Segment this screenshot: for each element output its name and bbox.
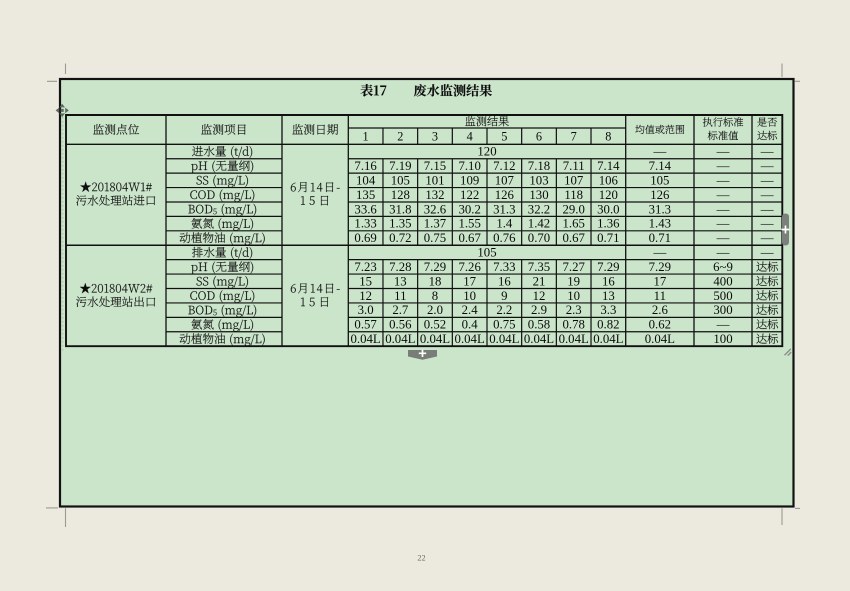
svg-text:—: — (760, 159, 774, 173)
svg-text:0.67: 0.67 (458, 231, 481, 245)
svg-text:0.76: 0.76 (493, 231, 516, 245)
svg-text:118: 118 (564, 188, 583, 202)
svg-text:32.2: 32.2 (528, 202, 550, 216)
svg-text:12: 12 (533, 289, 546, 303)
svg-text:6~9: 6~9 (713, 260, 733, 274)
svg-text:31.3: 31.3 (493, 202, 515, 216)
svg-text:7.26: 7.26 (458, 260, 481, 274)
svg-text:15: 15 (359, 274, 372, 288)
svg-text:130: 130 (529, 188, 548, 202)
svg-text:500: 500 (713, 289, 732, 303)
svg-text:—: — (716, 318, 730, 332)
svg-text:13: 13 (394, 274, 407, 288)
svg-text:—: — (716, 202, 730, 216)
svg-text:16: 16 (602, 274, 615, 288)
svg-text:105: 105 (650, 173, 669, 187)
svg-text:29.0: 29.0 (562, 202, 584, 216)
svg-text:107: 107 (495, 173, 515, 187)
svg-text:31.8: 31.8 (389, 202, 411, 216)
svg-text:—: — (716, 231, 730, 245)
svg-text:—: — (760, 173, 774, 187)
svg-text:1: 1 (363, 129, 369, 143)
svg-text:11: 11 (654, 289, 666, 303)
svg-text:10: 10 (463, 289, 476, 303)
svg-text:7.14: 7.14 (649, 159, 672, 173)
svg-text:18: 18 (429, 274, 442, 288)
svg-text:0.75: 0.75 (493, 318, 515, 332)
svg-text:0.04L: 0.04L (351, 332, 381, 346)
svg-text:105: 105 (391, 173, 410, 187)
svg-text:2.0: 2.0 (427, 303, 443, 317)
svg-text:0.04L: 0.04L (645, 332, 675, 346)
svg-text:0.04L: 0.04L (420, 332, 450, 346)
svg-text:0.75: 0.75 (424, 231, 446, 245)
svg-text:0.78: 0.78 (562, 318, 584, 332)
svg-text:17: 17 (463, 274, 476, 288)
svg-text:19: 19 (567, 274, 580, 288)
svg-text:0.62: 0.62 (649, 318, 671, 332)
svg-text:1.35: 1.35 (389, 217, 411, 231)
svg-text:0.72: 0.72 (389, 231, 411, 245)
svg-text:2.6: 2.6 (652, 303, 669, 317)
svg-text:33.6: 33.6 (354, 202, 377, 216)
svg-text:8: 8 (432, 289, 438, 303)
svg-text:7.27: 7.27 (562, 260, 585, 274)
svg-text:11: 11 (394, 289, 406, 303)
svg-text:122: 122 (460, 188, 479, 202)
svg-text:—: — (716, 145, 730, 159)
svg-text:7.19: 7.19 (389, 159, 411, 173)
svg-text:105: 105 (477, 246, 496, 260)
svg-text:22: 22 (417, 554, 425, 563)
svg-text:—: — (652, 145, 666, 159)
svg-text:1.55: 1.55 (458, 217, 480, 231)
svg-text:126: 126 (495, 188, 515, 202)
svg-text:0.70: 0.70 (528, 231, 550, 245)
svg-text:1.42: 1.42 (528, 217, 550, 231)
svg-text:1.33: 1.33 (354, 217, 376, 231)
svg-text:0.67: 0.67 (562, 231, 585, 245)
svg-text:107: 107 (564, 173, 584, 187)
svg-text:128: 128 (391, 188, 410, 202)
svg-text:—: — (716, 188, 730, 202)
svg-text:7.15: 7.15 (424, 159, 446, 173)
svg-text:3.0: 3.0 (358, 303, 374, 317)
svg-text:1.37: 1.37 (424, 217, 447, 231)
svg-text:0.04L: 0.04L (489, 332, 519, 346)
svg-text:0.71: 0.71 (649, 231, 671, 245)
svg-text:3: 3 (432, 129, 438, 143)
svg-text:0.82: 0.82 (597, 318, 619, 332)
svg-text:—: — (716, 173, 730, 187)
svg-text:7: 7 (571, 129, 577, 143)
svg-text:30.0: 30.0 (597, 202, 619, 216)
svg-text:120: 120 (599, 188, 618, 202)
svg-text:—: — (760, 246, 774, 260)
svg-text:7.23: 7.23 (354, 260, 376, 274)
svg-text:2.7: 2.7 (392, 303, 409, 317)
svg-text:0.56: 0.56 (389, 318, 412, 332)
svg-text:2.3: 2.3 (566, 303, 582, 317)
svg-text:7.29: 7.29 (424, 260, 446, 274)
svg-text:120: 120 (477, 145, 496, 159)
svg-text:31.3: 31.3 (649, 202, 671, 216)
svg-text:—: — (760, 231, 774, 245)
svg-text:2.2: 2.2 (496, 303, 512, 317)
svg-text:2.9: 2.9 (531, 303, 547, 317)
svg-text:101: 101 (425, 173, 444, 187)
svg-text:1.65: 1.65 (562, 217, 584, 231)
svg-text:7.35: 7.35 (528, 260, 550, 274)
svg-text:5: 5 (501, 129, 507, 143)
svg-text:30.2: 30.2 (458, 202, 480, 216)
svg-text:100: 100 (713, 332, 732, 346)
svg-text:—: — (716, 246, 730, 260)
svg-text:8: 8 (605, 129, 611, 143)
svg-text:0.57: 0.57 (354, 318, 377, 332)
svg-text:0.52: 0.52 (424, 318, 446, 332)
svg-text:16: 16 (498, 274, 511, 288)
svg-text:7.28: 7.28 (389, 260, 411, 274)
svg-text:0.04L: 0.04L (385, 332, 415, 346)
svg-text:—: — (716, 159, 730, 173)
svg-text:132: 132 (425, 188, 444, 202)
svg-text:—: — (716, 217, 730, 231)
svg-text:7.29: 7.29 (597, 260, 619, 274)
svg-text:—: — (652, 246, 666, 260)
svg-text:7.29: 7.29 (649, 260, 671, 274)
svg-text:109: 109 (460, 173, 479, 187)
svg-text:—: — (760, 188, 774, 202)
svg-text:32.6: 32.6 (424, 202, 447, 216)
svg-text:106: 106 (599, 173, 619, 187)
svg-text:7.14: 7.14 (597, 159, 620, 173)
svg-text:7.12: 7.12 (493, 159, 515, 173)
svg-text:—: — (760, 217, 774, 231)
svg-text:7.33: 7.33 (493, 260, 515, 274)
svg-text:9: 9 (501, 289, 507, 303)
svg-text:13: 13 (602, 289, 615, 303)
svg-text:—: — (760, 145, 774, 159)
svg-text:3.3: 3.3 (600, 303, 616, 317)
svg-text:0.69: 0.69 (354, 231, 376, 245)
svg-text:2.4: 2.4 (462, 303, 479, 317)
svg-text:6: 6 (536, 129, 542, 143)
svg-text:2: 2 (397, 129, 403, 143)
svg-text:21: 21 (533, 274, 546, 288)
svg-text:1.43: 1.43 (649, 217, 671, 231)
svg-text:1.4: 1.4 (496, 217, 513, 231)
svg-text:0.04L: 0.04L (524, 332, 554, 346)
svg-text:300: 300 (713, 303, 732, 317)
svg-text:400: 400 (713, 274, 732, 288)
svg-text:0.04L: 0.04L (559, 332, 589, 346)
svg-text:12: 12 (359, 289, 372, 303)
svg-text:0.71: 0.71 (597, 231, 619, 245)
svg-text:7.10: 7.10 (458, 159, 480, 173)
svg-text:7.11: 7.11 (563, 159, 585, 173)
svg-text:0.4: 0.4 (462, 318, 479, 332)
svg-text:0.58: 0.58 (528, 318, 550, 332)
svg-text:135: 135 (356, 188, 375, 202)
svg-text:7.18: 7.18 (528, 159, 550, 173)
svg-text:126: 126 (650, 188, 670, 202)
svg-text:—: — (760, 202, 774, 216)
svg-text:103: 103 (529, 173, 548, 187)
svg-text:1.36: 1.36 (597, 217, 620, 231)
svg-text:0.04L: 0.04L (455, 332, 485, 346)
svg-text:10: 10 (567, 289, 580, 303)
svg-text:17: 17 (653, 274, 666, 288)
svg-text:7.16: 7.16 (354, 159, 377, 173)
svg-text:0.04L: 0.04L (593, 332, 623, 346)
svg-text:4: 4 (467, 129, 473, 143)
svg-text:104: 104 (356, 173, 376, 187)
